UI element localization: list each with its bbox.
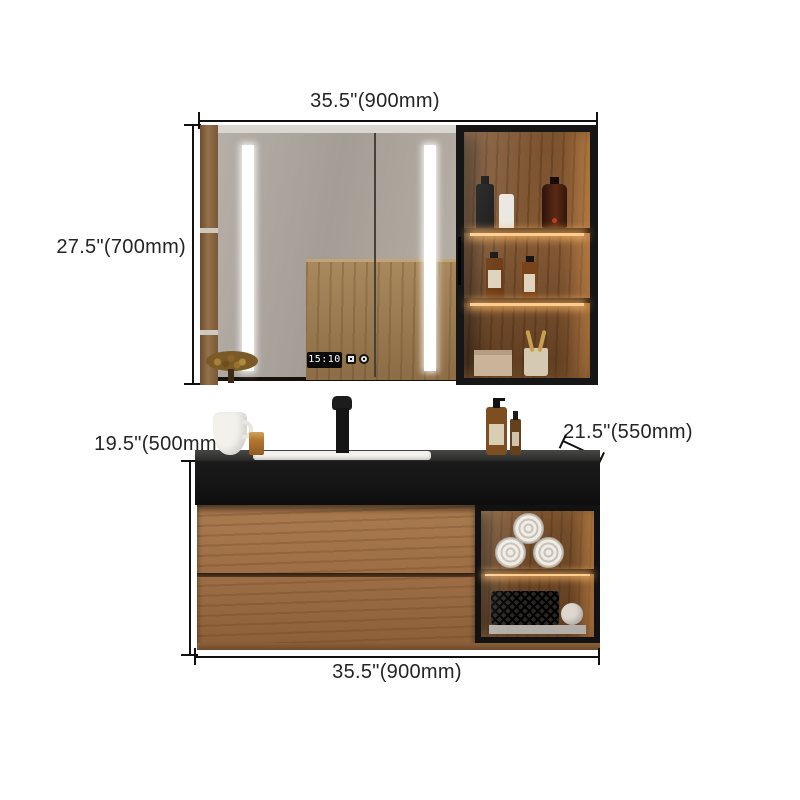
digital-clock: 15:10	[307, 352, 342, 368]
soap-label	[489, 424, 504, 445]
display-cabinet-interior	[464, 132, 590, 378]
soap-pump	[493, 398, 500, 408]
counter-depth-label: 21.5"(550mm)	[528, 421, 728, 444]
dried-flowers	[206, 351, 258, 371]
dimension-tick	[184, 383, 201, 385]
amber-glass	[249, 432, 264, 455]
open-shelf-interior	[481, 511, 594, 637]
vanity-height-dimension-line	[189, 461, 191, 656]
cabinet-bottom-board	[197, 643, 600, 650]
dropper-cap	[513, 411, 518, 420]
soap-pump-bottle	[486, 407, 507, 455]
grid-icon	[346, 354, 356, 364]
faucet	[336, 408, 349, 453]
glass-door-reflection	[464, 132, 590, 378]
mirror-doors: 15:10	[218, 133, 458, 381]
dimension-tick	[184, 124, 201, 126]
side-shelf-board	[200, 330, 218, 335]
product-dimension-image: 35.5"(900mm) 27.5"(700mm) 15:10	[0, 0, 800, 800]
dried-flowers-stem	[228, 369, 234, 383]
glass-door-reflection	[481, 511, 594, 637]
open-shelf-section	[475, 505, 600, 643]
glass-display-cabinet	[456, 125, 598, 385]
vanity-cabinet	[197, 505, 600, 650]
dimension-tick	[194, 648, 196, 665]
side-shelf-board	[200, 228, 218, 233]
led-strip-right	[424, 145, 436, 371]
black-countertop	[195, 450, 600, 505]
wood-drawers	[197, 505, 475, 643]
dropper-label	[512, 432, 519, 446]
cabinet-door-handle	[458, 237, 461, 285]
mirror-door-seam	[374, 133, 376, 377]
vanity-width-label: 35.5"(900mm)	[297, 661, 497, 684]
side-open-shelf	[200, 125, 218, 385]
mirror-height-label: 27.5"(700mm)	[18, 236, 186, 259]
dropper-bottle	[510, 419, 521, 455]
mirror-cabinet: 15:10	[200, 125, 598, 385]
led-strip-left	[242, 145, 254, 371]
mirror-height-dimension-line	[192, 125, 194, 385]
defog-icon	[359, 354, 369, 364]
dimension-tick	[598, 648, 600, 665]
mirror-width-dimension-line	[199, 120, 598, 122]
drawer-divider	[197, 573, 475, 577]
vanity-width-dimension-line	[195, 656, 600, 658]
mirror-width-label: 35.5"(900mm)	[275, 90, 475, 113]
